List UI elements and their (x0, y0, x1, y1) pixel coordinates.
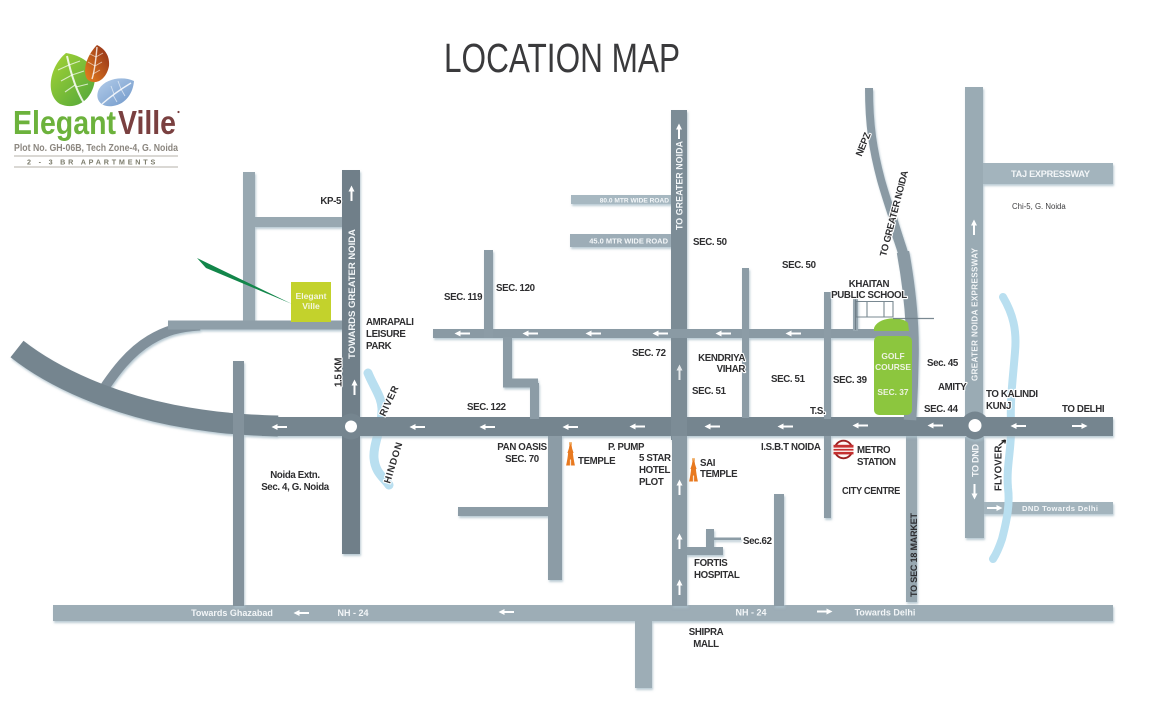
svg-text:T.S.: T.S. (810, 406, 826, 417)
svg-text:Ville: Ville (118, 104, 176, 141)
svg-text:CITY CENTRE: CITY CENTRE (842, 486, 901, 497)
svg-text:MALL: MALL (693, 639, 719, 650)
svg-text:TO GREATER NOIDA: TO GREATER NOIDA (675, 140, 685, 230)
svg-text:TO SEC 18 MARKET: TO SEC 18 MARKET (909, 513, 919, 598)
svg-text:80.0 MTR WIDE ROAD: 80.0 MTR WIDE ROAD (600, 197, 669, 204)
svg-text:Noida Extn.: Noida Extn. (270, 470, 320, 481)
svg-text:AMRAPALI: AMRAPALI (366, 317, 414, 328)
svg-text:HOSPITAL: HOSPITAL (694, 570, 740, 581)
svg-text:KUNJ: KUNJ (986, 401, 1011, 412)
svg-text:5 STAR: 5 STAR (639, 453, 671, 464)
svg-text:Towards Ghazabad: Towards Ghazabad (191, 608, 273, 618)
svg-text:SEC. 122: SEC. 122 (467, 402, 506, 413)
svg-text:P. PUMP: P. PUMP (608, 442, 645, 453)
svg-text:LEISURE: LEISURE (366, 329, 406, 340)
svg-text:2 - 3 BR APARTMENTS: 2 - 3 BR APARTMENTS (27, 158, 158, 167)
svg-text:SEC. 50: SEC. 50 (693, 237, 727, 248)
svg-text:HOTEL: HOTEL (639, 465, 671, 476)
svg-text:SEC. 44: SEC. 44 (924, 404, 959, 415)
svg-text:GREATER NOIDA EXPRESSWAY: GREATER NOIDA EXPRESSWAY (971, 247, 980, 381)
svg-text:Sec.62: Sec.62 (743, 536, 772, 547)
svg-text:PARK: PARK (366, 341, 392, 352)
svg-text:SAI: SAI (700, 458, 716, 469)
svg-text:SEC. 119: SEC. 119 (444, 292, 483, 303)
svg-text:TOWARDS GREATER NOIDA: TOWARDS GREATER NOIDA (347, 229, 358, 359)
svg-text:Plot No. GH-06B, Tech Zone-4,: Plot No. GH-06B, Tech Zone-4, G. Noida (14, 143, 178, 154)
svg-text:DND Towards Delhi: DND Towards Delhi (1022, 504, 1098, 513)
svg-text:TEMPLE: TEMPLE (700, 469, 738, 480)
svg-text:Ville: Ville (302, 301, 320, 311)
svg-text:FORTIS: FORTIS (694, 558, 728, 569)
svg-text:STATION: STATION (857, 457, 896, 468)
svg-text:PUBLIC SCHOOL: PUBLIC SCHOOL (831, 290, 907, 301)
svg-text:LOCATION MAP: LOCATION MAP (444, 35, 680, 81)
svg-text:TO DELHI: TO DELHI (1062, 404, 1105, 415)
svg-text:KP-5: KP-5 (320, 196, 342, 207)
svg-text:SEC. 50: SEC. 50 (782, 260, 816, 271)
svg-text:COURSE: COURSE (875, 362, 911, 372)
svg-text:Sec. 45: Sec. 45 (927, 358, 959, 369)
svg-text:Towards Delhi: Towards Delhi (855, 608, 916, 618)
svg-text:TO DND: TO DND (971, 444, 981, 478)
svg-text:NH - 24: NH - 24 (735, 608, 766, 618)
svg-text:GOLF: GOLF (881, 351, 904, 361)
svg-text:SEC. 72: SEC. 72 (632, 348, 666, 359)
svg-text:FLYOVER: FLYOVER (994, 446, 1005, 491)
svg-text:SEC. 120: SEC. 120 (496, 283, 535, 294)
svg-text:PAN OASIS: PAN OASIS (497, 442, 547, 453)
svg-text:TAJ EXPRESSWAY: TAJ EXPRESSWAY (1011, 169, 1090, 179)
svg-text:PLOT: PLOT (639, 477, 664, 488)
svg-text:SEC. 51: SEC. 51 (771, 374, 806, 385)
svg-text:SEC. 51: SEC. 51 (692, 386, 727, 397)
svg-text:45.0 MTR WIDE ROAD: 45.0 MTR WIDE ROAD (589, 237, 668, 246)
svg-text:TO KALINDI: TO KALINDI (986, 389, 1038, 400)
svg-text:SHIPRA: SHIPRA (689, 627, 724, 638)
svg-text:SEC. 39: SEC. 39 (833, 375, 868, 386)
svg-text:Chi-5, G. Noida: Chi-5, G. Noida (1012, 202, 1066, 211)
svg-text:SEC. 37: SEC. 37 (877, 387, 909, 397)
svg-text:VIHAR: VIHAR (717, 364, 746, 375)
svg-text:Elegant: Elegant (295, 291, 326, 301)
svg-text:AMITY: AMITY (938, 382, 967, 393)
svg-text:SEC. 70: SEC. 70 (505, 454, 539, 465)
svg-text:I.S.B.T NOIDA: I.S.B.T NOIDA (761, 442, 821, 453)
svg-text:NH - 24: NH - 24 (337, 608, 368, 618)
svg-text:1.5 KM: 1.5 KM (334, 358, 345, 387)
svg-text:METRO: METRO (857, 445, 891, 456)
svg-text:Sec. 4, G. Noida: Sec. 4, G. Noida (261, 482, 330, 493)
svg-text:KHAITAN: KHAITAN (849, 279, 890, 290)
svg-text:Elegant: Elegant (13, 104, 116, 141)
svg-text:TEMPLE: TEMPLE (578, 456, 616, 467)
svg-text:KENDRIYA: KENDRIYA (698, 353, 745, 364)
